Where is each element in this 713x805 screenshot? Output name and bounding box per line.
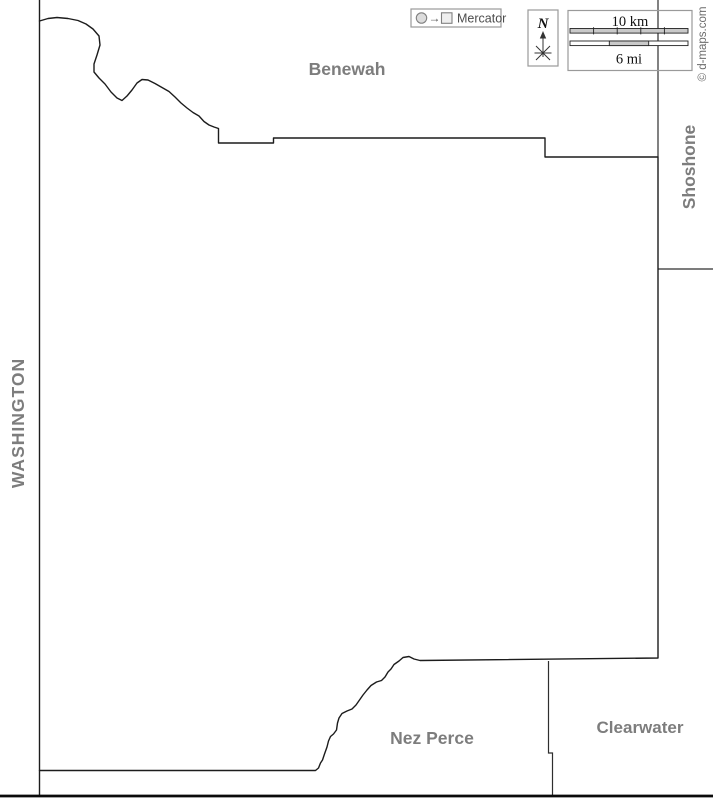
- mi-bar: [570, 41, 688, 46]
- copyright-credit: © d-maps.com: [697, 7, 709, 82]
- projection-arrow-icon: →: [429, 11, 441, 25]
- compass: N: [528, 10, 558, 66]
- nezperce-clearwater-border-line: [549, 661, 553, 795]
- label-nez-perce: Nez Perce: [390, 728, 474, 748]
- north-arrow-icon: [535, 31, 552, 60]
- scale-mi-label: 6 mi: [616, 52, 642, 68]
- globe-circle-icon: [416, 13, 426, 23]
- compass-north-label: N: [537, 16, 550, 32]
- latah-county-outline: [40, 18, 659, 771]
- projection-label: Mercator: [457, 12, 506, 26]
- label-clearwater: Clearwater: [597, 718, 684, 737]
- label-washington: WASHINGTON: [8, 358, 28, 488]
- label-benewah: Benewah: [309, 59, 386, 79]
- map-canvas: Benewah WASHINGTON Shoshone Nez Perce Cl…: [0, 0, 713, 800]
- scale-bar: 10 km 6 mi: [568, 11, 692, 71]
- outline-map: Benewah WASHINGTON Shoshone Nez Perce Cl…: [0, 0, 713, 800]
- km-bar: [570, 27, 688, 34]
- label-shoshone: Shoshone: [679, 124, 699, 209]
- projection-legend: → Mercator: [411, 9, 506, 27]
- flat-map-square-icon: [442, 13, 453, 23]
